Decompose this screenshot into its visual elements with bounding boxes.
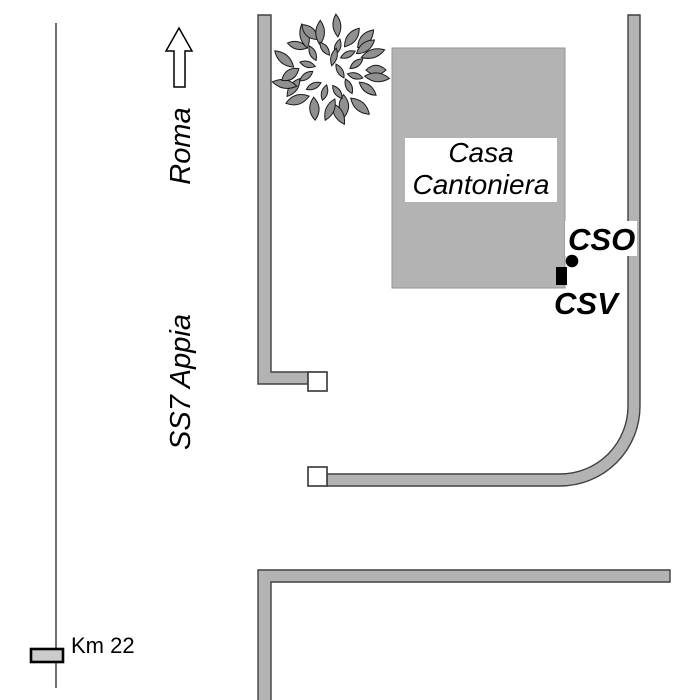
tree-leaf [343,78,355,95]
left-access-road [258,15,308,384]
tree-leaf [318,40,332,56]
gate-square-lower [308,467,327,486]
site-map: Casa Cantoniera Roma SS7 Appia CSO CSV K… [0,0,700,700]
tree-leaf [319,84,329,101]
bottom-road [258,570,670,700]
tree-leaf [305,80,322,92]
ss7-appia-label: SS7 Appia [165,314,197,450]
tree-icon [272,14,390,127]
tree-leaf [307,45,319,62]
building-label-line2: Cantoniera [413,169,550,200]
roma-direction-arrow-icon [166,28,192,87]
csv-point-icon [556,267,567,285]
building-label-line1: Casa [448,137,513,168]
km-22-marker [31,649,63,662]
tree-leaf [332,14,342,38]
tree-leaf [298,69,314,83]
tree-leaf [348,95,373,118]
cso-point-icon [566,255,579,268]
csv-label: CSV [554,286,620,321]
tree-leaf [348,57,364,71]
tree-leaf [334,63,347,80]
cso-label: CSO [568,222,635,257]
tree-leaf [330,84,344,100]
tree-leaf [299,59,316,69]
gate-square-upper [308,372,327,391]
roma-label: Roma [165,107,197,184]
tree-leaf [309,97,320,121]
tree-leaf [347,71,364,81]
tree-leaf [316,20,325,45]
km-22-label: Km 22 [71,633,135,658]
tree-leaf [272,47,297,70]
map-canvas: Casa Cantoniera Roma SS7 Appia CSO CSV K… [0,0,700,700]
tree-leaf [339,48,356,60]
tree-leaf [364,72,390,83]
